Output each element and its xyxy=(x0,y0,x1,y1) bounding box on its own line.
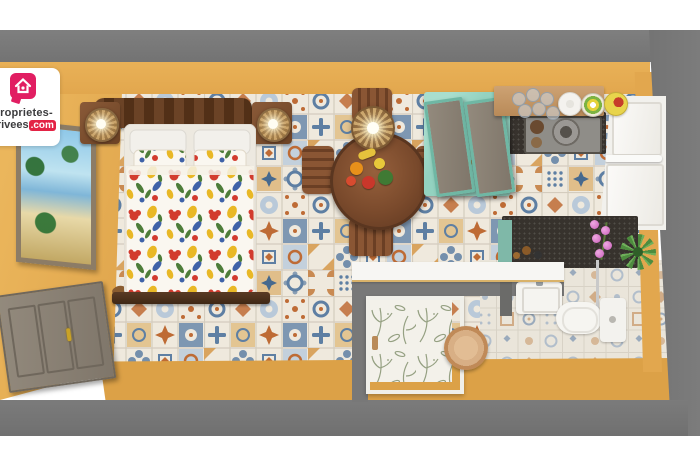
toilet-seat xyxy=(562,307,598,333)
bottle xyxy=(522,246,531,255)
bottle xyxy=(513,252,520,259)
lemon-fruit xyxy=(374,158,385,169)
cabinet-handle xyxy=(604,155,662,162)
mirror xyxy=(500,282,512,316)
pot-small xyxy=(531,137,542,148)
frosted-leaf-glass xyxy=(370,300,452,382)
house-pin-icon xyxy=(10,73,36,99)
drinking-glass xyxy=(518,104,532,118)
flush-button xyxy=(609,316,616,323)
brand-tld-chip: .com xyxy=(29,120,56,131)
frying-pan xyxy=(552,118,580,146)
wall-sink xyxy=(516,282,562,314)
brand-line2: privees.com xyxy=(0,119,60,131)
orchid-petal xyxy=(590,220,599,229)
orchid-petal xyxy=(592,234,601,243)
orchid-petal xyxy=(601,226,610,235)
yellow-bowl xyxy=(604,92,628,116)
apple-fruit xyxy=(362,176,375,189)
dining-chair-left xyxy=(302,146,334,194)
orchid-petal xyxy=(595,249,604,258)
wall-top xyxy=(0,30,676,62)
shower-door-handle xyxy=(372,336,378,350)
greens xyxy=(378,170,393,185)
double-bed xyxy=(124,124,256,296)
lamp-bulb xyxy=(268,119,278,129)
brand-line1: proprietes- xyxy=(0,107,60,119)
wooden-stool xyxy=(444,326,488,370)
watermark-logo: proprietes- privees.com xyxy=(0,68,60,146)
duvet-fold xyxy=(126,166,254,175)
brand-name: privees xyxy=(0,119,29,131)
toilet-bowl xyxy=(556,302,602,334)
drinking-glass xyxy=(532,102,546,116)
wall-bottom xyxy=(0,400,688,436)
rattan-pendant-lamp xyxy=(351,106,395,150)
drinking-glass xyxy=(526,88,540,102)
white-plate xyxy=(558,92,582,116)
tomato-fruit xyxy=(346,176,356,186)
plant-core xyxy=(633,247,643,257)
bed-end-bench xyxy=(112,292,270,304)
entry-door xyxy=(0,281,116,393)
rattan-lamp-right xyxy=(257,108,291,142)
tall-white-cabinet xyxy=(600,96,666,230)
half-wall-counter xyxy=(352,262,564,282)
vanity-side-panel xyxy=(498,220,512,266)
sink-basin xyxy=(522,287,560,313)
pot xyxy=(530,120,544,134)
floral-duvet xyxy=(126,166,254,294)
pendant-bulb xyxy=(367,122,379,134)
bottle xyxy=(534,251,542,259)
floorplan-scene: proprietes- privees.com xyxy=(0,0,700,455)
rattan-lamp-left xyxy=(85,108,119,142)
house-glyph xyxy=(10,73,36,99)
orange-fruit xyxy=(350,162,363,175)
striped-plate xyxy=(581,93,605,117)
potted-plant xyxy=(620,234,656,270)
orchid xyxy=(590,218,618,264)
toilet-tank xyxy=(600,298,626,342)
lamp-bulb xyxy=(96,119,106,129)
orchid-petal xyxy=(603,241,612,250)
